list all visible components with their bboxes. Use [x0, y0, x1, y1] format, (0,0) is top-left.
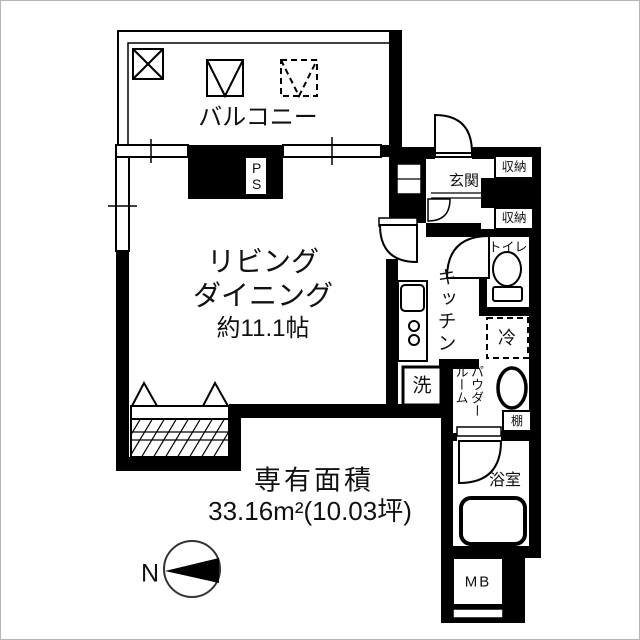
- window-top-left: [116, 145, 188, 157]
- living-label-line1: リビング: [207, 248, 319, 276]
- kitchen-sink: [401, 285, 424, 311]
- floor-plan-drawing: [1, 1, 640, 640]
- wall-bath-top-right: [501, 431, 541, 441]
- north-label: N: [141, 562, 159, 587]
- washer-label: 洗: [412, 377, 431, 396]
- folding-door-icon: [132, 383, 157, 406]
- floor-plan: バルコニー リビング ダイニング 約11.1帖 玄関 収納 収納 トイレ 冷 洗…: [0, 0, 640, 640]
- area-title: 専有面積: [254, 468, 374, 495]
- living-size-label: 約11.1帖: [217, 317, 310, 341]
- fridge-label: 冷: [498, 329, 516, 347]
- dashed-v-box-icon: [281, 60, 317, 96]
- wall-balcony-right: [389, 31, 401, 159]
- pipe-space-label: PS: [248, 160, 263, 192]
- living-label-line2: ダイニング: [193, 282, 333, 310]
- shelf-label: 棚: [511, 415, 523, 427]
- wall-powder-left: [441, 369, 453, 441]
- wall-left: [116, 249, 129, 471]
- hall-door-swing: [380, 225, 417, 262]
- crossed-box-icon: [133, 49, 163, 79]
- closet: [117, 383, 237, 458]
- storage-upper-label: 収納: [501, 161, 526, 174]
- entrance-step-door-swing: [428, 199, 450, 221]
- entrance-label: 玄関: [449, 174, 479, 189]
- kitchen-label: キッチン: [434, 267, 455, 355]
- wall-bath-bottom: [441, 546, 541, 558]
- powder-sink: [498, 368, 526, 408]
- wall-bath-top-left: [441, 433, 457, 441]
- area-value: 33.16m²(10.03坪): [208, 498, 412, 524]
- compass-icon: [164, 541, 220, 597]
- toilet-fixture: [493, 252, 522, 301]
- powder-room-label: パウダールーム: [453, 365, 484, 429]
- front-door-swing: [435, 115, 472, 153]
- wall-toilet-bottom: [479, 307, 541, 316]
- wall-bath-left: [441, 441, 453, 546]
- stove-burner-icon: [409, 335, 419, 345]
- bathtub: [461, 498, 525, 544]
- meter-box-slot: [453, 609, 503, 618]
- toilet-label: トイレ: [488, 241, 527, 254]
- open-v-box-icon: [207, 60, 243, 96]
- closet-door-bar: [131, 406, 229, 419]
- balcony-inner-rail: [128, 43, 391, 153]
- balcony-label: バルコニー: [198, 106, 318, 130]
- meter-box-label: MB: [465, 575, 492, 590]
- bathroom-label: 浴室: [489, 473, 521, 489]
- storage-lower-label: 収納: [501, 212, 526, 225]
- folding-door-icon: [203, 383, 228, 406]
- stove-burner-icon: [409, 321, 419, 331]
- kitchen-counter: [398, 281, 427, 361]
- wall-top-mid: [381, 145, 401, 157]
- wall-pipe-space-block: [188, 145, 283, 199]
- window-left-wall: [116, 157, 129, 251]
- shoe-cabinet: [397, 164, 421, 194]
- wall-bottom-left: [116, 457, 241, 471]
- wall-kitchen-living: [386, 259, 398, 404]
